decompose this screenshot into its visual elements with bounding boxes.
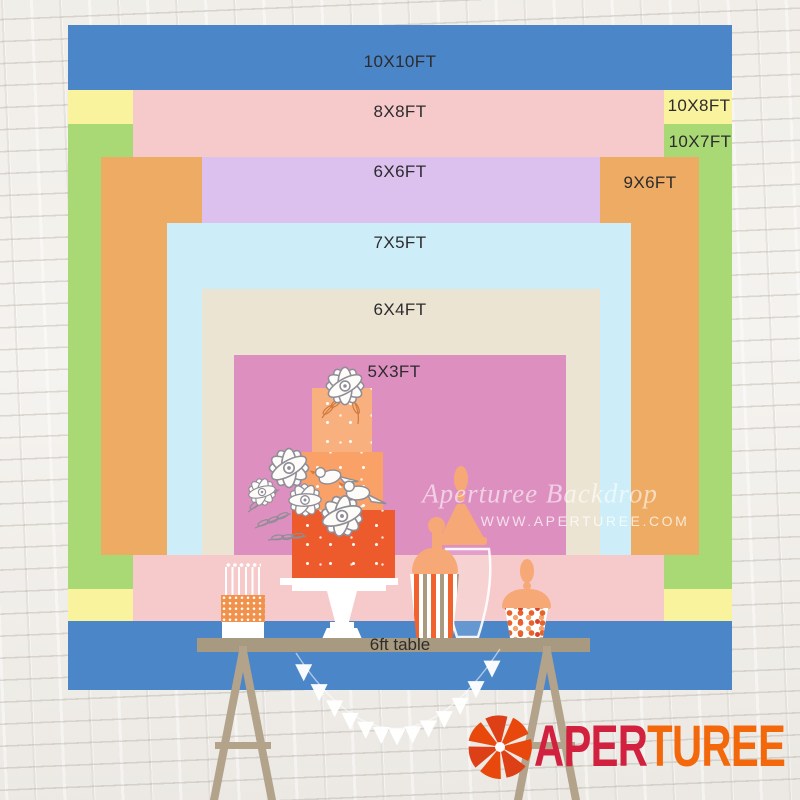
pennant-triangle bbox=[468, 681, 485, 698]
pennant-triangle bbox=[389, 729, 406, 746]
pennant-triangle bbox=[326, 700, 343, 717]
pennant-triangle bbox=[373, 727, 390, 744]
pennant-triangle bbox=[357, 722, 374, 739]
pennant-triangle bbox=[404, 726, 421, 743]
bunting-pennants-icon bbox=[0, 0, 800, 800]
aperture-shutter-icon bbox=[465, 712, 535, 782]
brand-wordmark: APERTUREE bbox=[534, 721, 785, 773]
brand-name-part2: TUREE bbox=[647, 714, 785, 779]
watermark-url: WWW.APERTUREE.COM bbox=[481, 513, 690, 529]
pennant-triangle bbox=[420, 721, 437, 738]
pennant-triangle bbox=[342, 713, 359, 730]
watermark-script: Aperturee Backdrop bbox=[422, 479, 658, 510]
brand-name-part1: APER bbox=[534, 714, 647, 779]
pennant-triangle bbox=[436, 711, 453, 728]
backdrop-size-chart-image: 10X10FT10X8FT10X7FT8X8FT9X6FT6X6FT7X5FT6… bbox=[0, 0, 800, 800]
pennant-triangle bbox=[311, 684, 328, 701]
